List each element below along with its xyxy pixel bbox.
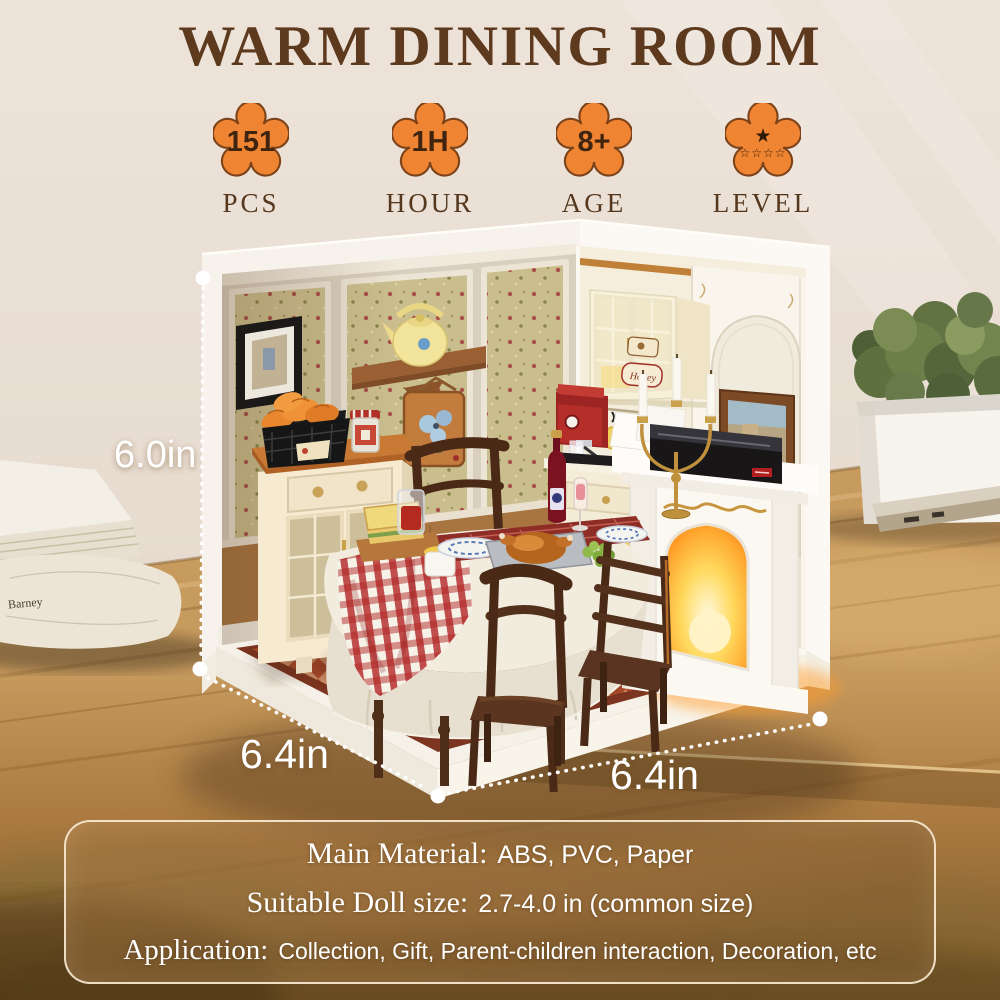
info-doll-size-value: 2.7-4.0 in (common size) — [478, 890, 753, 919]
badge-pcs-label: PCS — [187, 188, 315, 219]
badge-pcs: 151 PCS — [187, 103, 315, 219]
badge-level-label: LEVEL — [699, 188, 827, 219]
badge-age: 8+ AGE — [530, 103, 658, 219]
miniature-room: Honey — [202, 220, 840, 799]
book-spine-text: Barney — [7, 595, 43, 613]
level-star-filled-icon: ★ — [754, 126, 771, 147]
badge-hour-value: 1H — [392, 103, 468, 179]
dimension-height-label: 6.0in — [114, 434, 196, 477]
food-jar — [350, 410, 380, 452]
badge-hour-label: HOUR — [366, 188, 494, 219]
badge-pcs-value: 151 — [213, 103, 289, 179]
level-star-outline-icons: ☆☆☆☆ — [739, 147, 786, 160]
badge-age-value: 8+ — [556, 103, 632, 179]
info-application-label: Application: — [123, 934, 268, 967]
badge-age-label: AGE — [530, 188, 658, 219]
product-image: Honey — [0, 0, 1000, 1000]
info-line-material: Main Material: ABS, PVC, Paper — [307, 837, 694, 871]
info-panel: Main Material: ABS, PVC, Paper Suitable … — [64, 820, 936, 984]
page-title: WARM DINING ROOM — [0, 14, 1000, 79]
badge-hour: 1H HOUR — [366, 103, 494, 219]
info-material-value: ABS, PVC, Paper — [497, 841, 693, 870]
dimension-width-right-label: 6.4in — [610, 752, 699, 799]
dimension-width-left-label: 6.4in — [240, 731, 329, 778]
info-application-value: Collection, Gift, Parent-children intera… — [278, 938, 876, 965]
info-doll-size-label: Suitable Doll size: — [247, 886, 469, 920]
info-material-label: Main Material: — [307, 837, 488, 871]
info-line-application: Application: Collection, Gift, Parent-ch… — [123, 934, 876, 967]
info-line-doll-size: Suitable Doll size: 2.7-4.0 in (common s… — [247, 886, 754, 920]
badge-level: ★ ☆☆☆☆ LEVEL — [699, 103, 827, 219]
